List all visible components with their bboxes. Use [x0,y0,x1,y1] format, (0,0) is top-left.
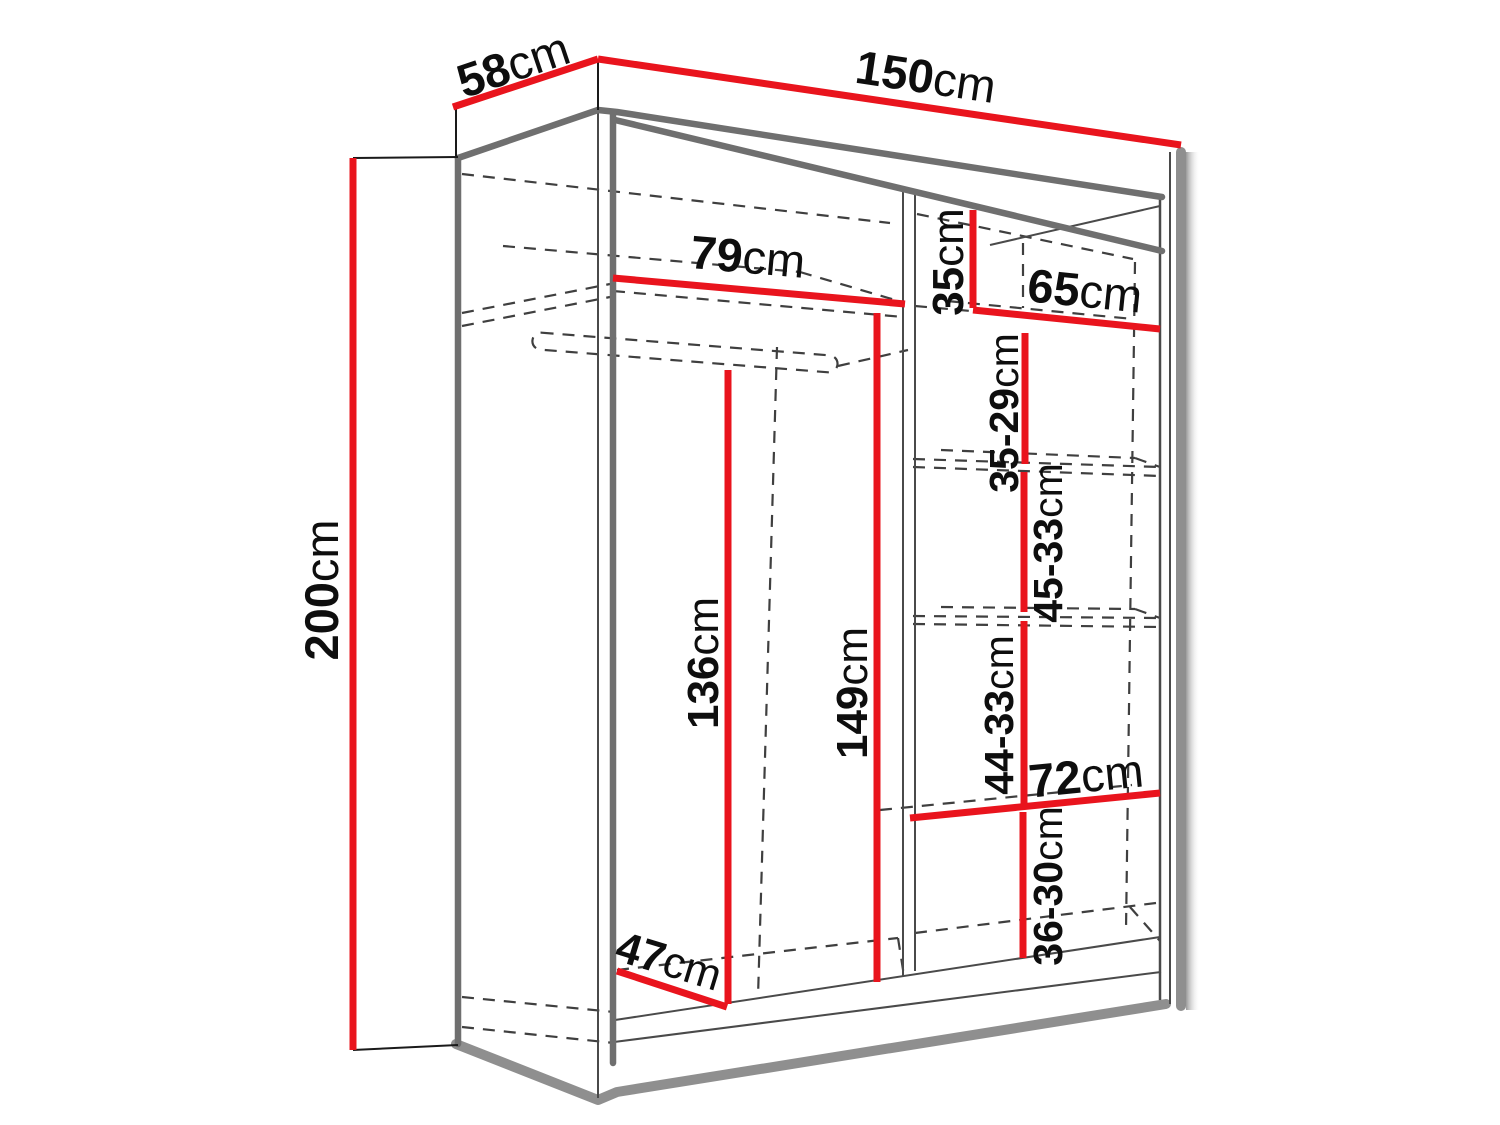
panel-floor-dash-2 [462,1027,614,1043]
label-depth-58: 58cm [450,21,576,108]
interior-back-top-edge [990,206,1160,245]
top-shelf-front-dash [613,291,903,317]
label-height-136: 136cm [679,597,728,729]
label-height-200: 200cm [295,519,348,660]
height-ext-top [353,157,458,158]
right-soft-shadow [1186,152,1200,1010]
diagram-canvas: 58cm 150cm 200cm 79cm 35cm 65cm 35-29cm … [0,0,1500,1125]
bottom-shadow [456,1004,1166,1100]
wardrobe-dimension-diagram: 58cm 150cm 200cm 79cm 35cm 65cm 35-29cm … [0,0,1500,1125]
rail-side-dash [838,350,908,366]
panel-hidden-dash-1 [462,284,610,313]
floor-side-dash-right [1130,907,1160,941]
shelfA-back-dash [941,450,1135,458]
label-top-35: 35cm [924,208,973,316]
label-height-149: 149cm [828,627,877,759]
label-gap-45-33: 45-33cm [1025,463,1071,623]
back-corner-dash-left [758,347,777,997]
shelfB-side-dash [1135,609,1160,618]
panel-floor-dash-1 [462,997,614,1012]
label-shelf-79: 79cm [688,225,807,288]
ceiling-dash-left [462,174,890,223]
label-gap-35-29: 35-29cm [981,333,1027,493]
height-ext-bottom [353,1045,458,1050]
side-top-edge [458,110,598,158]
label-gap-44-33: 44-33cm [976,635,1022,795]
hanger-rail-dash [532,332,838,373]
panel-hidden-dash-2 [462,297,610,326]
label-shelf-65: 65cm [1025,258,1145,322]
label-gap-36-30: 36-30cm [1025,806,1071,966]
dimension-labels: 58cm 150cm 200cm 79cm 35cm 65cm 35-29cm … [295,21,1146,1001]
back-corner-dash-right [1126,262,1135,930]
extension-lines [353,59,598,1050]
shelfB-front-dash-2 [913,624,1160,627]
